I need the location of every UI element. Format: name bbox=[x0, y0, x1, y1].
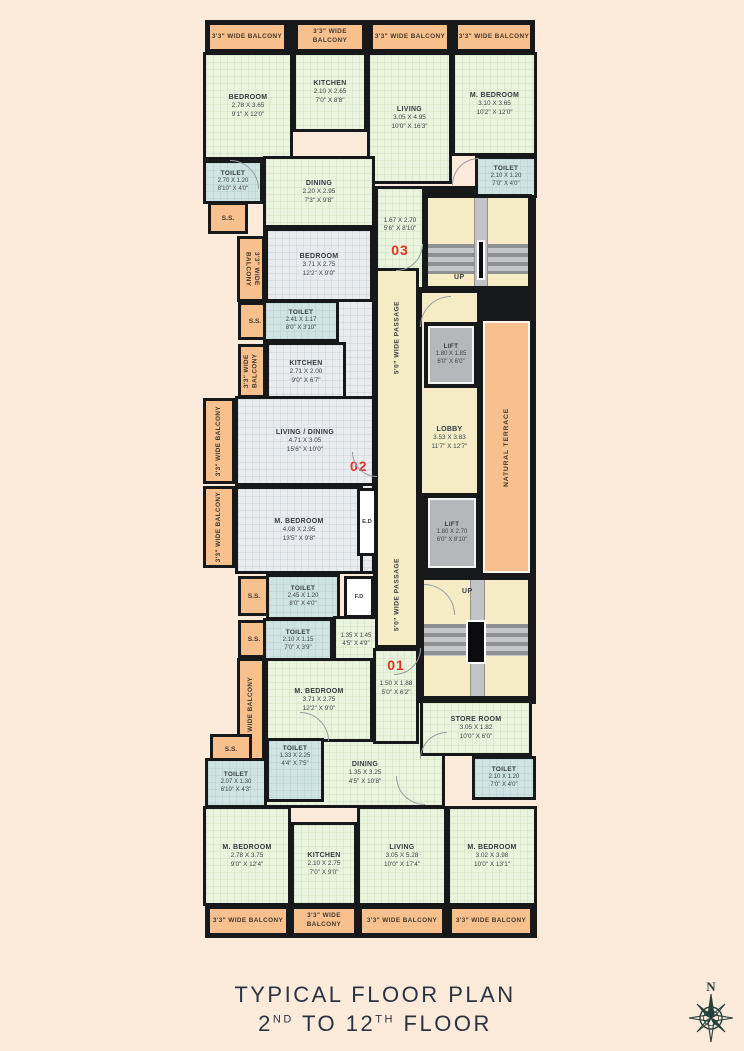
room-dim-m: 1.50 X 1.88 bbox=[380, 680, 413, 687]
room-name: LIFT bbox=[444, 343, 459, 351]
room-dim-ft: 9'0" X 12'4" bbox=[231, 861, 264, 869]
balcony-bottom-3: 3'3" WIDE BALCONY bbox=[359, 906, 445, 936]
lift-top: LIFT1.80 X 1.856'0" X 6'0" bbox=[424, 322, 478, 388]
room-name: M. BEDROOM bbox=[470, 91, 519, 100]
room-dim-m: 3.53 X 3.83 bbox=[433, 434, 466, 442]
room-mbedroom-unit02: M. BEDROOM4.08 X 2.9513'5" X 9'8" bbox=[235, 486, 363, 574]
room-dim-ft: 8'0" X 4'0" bbox=[289, 601, 316, 609]
room-mbedroom-bottom-left: M. BEDROOM2.78 X 3.759'0" X 12'4" bbox=[203, 806, 291, 906]
room-dim-ft: 7'0" X 9'0" bbox=[309, 869, 338, 877]
room-name: KITCHEN bbox=[313, 79, 346, 88]
room-dim-m: 3.05 X 4.95 bbox=[393, 114, 426, 122]
foyer-dim: 1.67 X 2.705'6" X 8'10" bbox=[384, 217, 417, 234]
balcony-left-2: 3'3" WIDE BALCONY bbox=[238, 344, 266, 398]
room-dim-ft: 15'6" X 10'0" bbox=[287, 446, 323, 454]
balcony-top-4: 3'3" WIDE BALCONY bbox=[455, 22, 533, 52]
room-bedroom-top: BEDROOM2.78 X 3.659'1" X 12'0" bbox=[203, 52, 293, 160]
room-dim-m: 2.41 X 1.17 bbox=[286, 317, 317, 325]
room-living-top: LIVING3.05 X 4.9510'0" X 16'3" bbox=[367, 52, 452, 184]
room-dim-ft: 5'0" X 6'2" bbox=[381, 689, 410, 696]
room-name: BEDROOM bbox=[229, 93, 268, 102]
room-name: TOILET bbox=[494, 165, 518, 173]
room-name: LIFT bbox=[445, 521, 460, 529]
room-name: M. BEDROOM bbox=[294, 687, 343, 696]
room-dim-ft: 6'0" X 8'10" bbox=[437, 537, 468, 545]
fd-label: F.D bbox=[355, 594, 364, 600]
room-name: M. BEDROOM bbox=[467, 843, 516, 852]
room-dining-bottom: DINING1.35 X 3.254'5" X 10'8" bbox=[320, 748, 410, 798]
foyer-dim: 1.50 X 1.885'0" X 6'2" bbox=[380, 680, 413, 697]
room-toilet1-bottom: TOILET1.33 X 2.254'4" X 7'5" bbox=[266, 738, 324, 802]
room-dim-m: 1.35 X 3.25 bbox=[349, 769, 382, 777]
room-bedroom-unit03: BEDROOM3.71 X 2.7512'2" X 9'0" bbox=[265, 228, 373, 302]
room-dim-m: 1.80 X 1.85 bbox=[436, 351, 467, 359]
room-toilet-bottom-right: TOILET2.10 X 1.207'0" X 4'0" bbox=[472, 756, 536, 800]
room-name: LIVING bbox=[389, 843, 414, 852]
room-name: STORE ROOM bbox=[451, 715, 502, 724]
title-sup: TH bbox=[375, 1014, 395, 1026]
room-dim-m: 2.10 X 1.15 bbox=[283, 637, 314, 645]
room-living-bottom: LIVING3.05 X 5.2810'0" X 17'4" bbox=[357, 806, 447, 906]
room-name: M. BEDROOM bbox=[222, 843, 271, 852]
room-dim-ft: 7'0" X 4'0" bbox=[492, 181, 519, 189]
floor-plan: 3'3" WIDE BALCONY 3'3" WIDE BALCONY 3'3"… bbox=[0, 0, 744, 1051]
room-dim-m: 2.78 X 3.65 bbox=[232, 102, 265, 110]
room-kitchen-top: KITCHEN2.10 X 2.657'0" X 8'8" bbox=[293, 52, 367, 132]
room-name: LIVING bbox=[397, 105, 422, 114]
room-dim-ft: 13'5" X 9'8" bbox=[283, 535, 316, 543]
room-dim-m: 2.10 X 1.20 bbox=[491, 173, 522, 181]
balcony-left-4: 3'3" WIDE BALCONY bbox=[203, 486, 235, 568]
room-name: DINING bbox=[352, 760, 378, 769]
natural-terrace: NATURAL TERRACE bbox=[480, 318, 533, 576]
balcony-label: 3'3" WIDE BALCONY bbox=[459, 33, 529, 42]
room-name: KITCHEN bbox=[307, 851, 340, 860]
room-name: TOILET bbox=[492, 766, 516, 774]
room-dim-m: 1.67 X 2.70 bbox=[384, 217, 417, 224]
room-dim-m: 1.33 X 2.25 bbox=[280, 753, 311, 761]
room-name: TOILET bbox=[291, 585, 315, 593]
compass-rose: N bbox=[683, 978, 739, 1046]
room-mbedroom-top: M. BEDROOM3.10 X 3.6510'2" X 12'0" bbox=[452, 52, 537, 156]
room-dim-ft: 6'10" X 4'3" bbox=[221, 787, 252, 795]
balcony-label: 3'3" WIDE BALCONY bbox=[294, 912, 354, 929]
room-dim-ft: 4'5" X 4'9" bbox=[342, 641, 369, 649]
room-dim-ft: 4'4" X 7'5" bbox=[281, 761, 308, 769]
balcony-label: 3'3" WIDE BALCONY bbox=[243, 347, 260, 395]
room-dim-m: 1.35 X 1.45 bbox=[341, 633, 372, 641]
room-name: TOILET bbox=[286, 629, 310, 637]
room-dim-m: 4.08 X 2.95 bbox=[283, 526, 316, 534]
room-dim-m: 3.71 X 2.75 bbox=[303, 696, 336, 704]
ss-label: S.S. bbox=[248, 636, 260, 643]
room-dim-ft: 4'5" X 10'8" bbox=[349, 778, 382, 786]
room-name: TOILET bbox=[283, 745, 307, 753]
plan-title-line1: TYPICAL FLOOR PLAN bbox=[180, 982, 570, 1008]
fire-duct: F.D bbox=[344, 576, 374, 618]
room-name: BEDROOM bbox=[300, 252, 339, 261]
balcony-label: 3'3" WIDE BALCONY bbox=[375, 33, 445, 42]
ss-label: S.S. bbox=[225, 746, 237, 753]
room-toilet-top-right: TOILET2.10 X 1.207'0" X 4'0" bbox=[475, 156, 537, 198]
room-dim-m: 2.78 X 3.75 bbox=[231, 852, 264, 860]
room-dim-ft: 7'0" X 4'0" bbox=[490, 782, 517, 790]
room-dim-m: 3.05 X 1.82 bbox=[460, 724, 493, 732]
balcony-label: 3'3" WIDE BALCONY bbox=[242, 239, 259, 299]
room-dim-ft: 9'1" X 12'0" bbox=[232, 111, 265, 119]
balcony-label: 3'3" WIDE BALCONY bbox=[212, 33, 282, 42]
room-name: LIVING / DINING bbox=[276, 428, 334, 437]
natural-terrace-label: NATURAL TERRACE bbox=[503, 408, 510, 487]
room-dim-m: 3.71 X 2.75 bbox=[303, 261, 336, 269]
balcony-left-1: 3'3" WIDE BALCONY bbox=[237, 236, 265, 302]
balcony-label: 3'3" WIDE BALCONY bbox=[213, 917, 283, 926]
electrical-duct: E.D bbox=[357, 488, 377, 556]
room-dim-m: 2.10 X 2.75 bbox=[308, 860, 341, 868]
balcony-label: 3'3" WIDE BALCONY bbox=[215, 492, 224, 562]
balcony-top-3: 3'3" WIDE BALCONY bbox=[370, 22, 450, 52]
balcony-left-3: 3'3" WIDE BALCONY bbox=[203, 398, 235, 484]
stair-newel bbox=[466, 620, 486, 664]
room-name: TOILET bbox=[289, 309, 313, 317]
title-num: 2 bbox=[258, 1011, 273, 1036]
stair-newel bbox=[477, 240, 485, 280]
room-name: M. BEDROOM bbox=[274, 517, 323, 526]
balcony-top-1: 3'3" WIDE BALCONY bbox=[207, 22, 287, 52]
room-kitchen-unit03: KITCHEN2.71 X 2.009'0" X 6'7" bbox=[266, 342, 346, 402]
room-dim-m: 2.07 X 1.30 bbox=[221, 779, 252, 787]
room-dim-ft: 7'0" X 8'8" bbox=[315, 97, 344, 105]
room-dim-ft: 9'0" X 6'7" bbox=[291, 377, 320, 385]
title-sup: ND bbox=[273, 1014, 294, 1026]
lift-bottom: LIFT1.80 X 2.706'0" X 8'10" bbox=[424, 494, 480, 572]
room-name: KITCHEN bbox=[289, 359, 322, 368]
ss-label: S.S. bbox=[222, 215, 234, 222]
room-name: LOBBY bbox=[437, 425, 463, 434]
balcony-label: 3'3" WIDE BALCONY bbox=[215, 406, 224, 476]
room-dim-ft: 10'0" X 16'3" bbox=[391, 123, 427, 131]
room-name: DINING bbox=[306, 179, 332, 188]
room-dim-m: 2.10 X 2.65 bbox=[314, 88, 347, 96]
service-shaft-1: S.S. bbox=[208, 202, 248, 234]
balcony-top-2: 3'3" WIDE BALCONY bbox=[295, 22, 365, 52]
balcony-label: 3'3" WIDE BALCONY bbox=[367, 917, 437, 926]
balcony-label: 3'3" WIDE BALCONY bbox=[298, 28, 362, 45]
title-mid: TO bbox=[294, 1011, 346, 1036]
room-toilet-unit03: TOILET2.41 X 1.178'0" X 3'10" bbox=[263, 300, 339, 342]
room-dim-m: 4.71 X 3.05 bbox=[289, 437, 322, 445]
room-dining-top: DINING2.20 X 2.957'3" X 9'8" bbox=[263, 156, 375, 228]
room-dim-ft: 10'0" X 13'1" bbox=[474, 861, 510, 869]
room-toilet2-bottom: TOILET2.07 X 1.306'10" X 4'3" bbox=[205, 758, 267, 808]
room-dim-ft: 8'0" X 3'10" bbox=[286, 325, 317, 333]
stairwell-top: UP bbox=[424, 194, 532, 290]
room-dim-ft: 11'7" X 12'7" bbox=[432, 443, 468, 451]
door-swing-arc bbox=[452, 158, 479, 185]
room-toilet1-unit02: TOILET2.45 X 1.208'0" X 4'0" bbox=[266, 574, 340, 620]
room-dim-m: 2.20 X 2.95 bbox=[303, 188, 336, 196]
balcony-bottom-2: 3'3" WIDE BALCONY bbox=[291, 906, 357, 936]
room-dim-m: 3.02 X 3.98 bbox=[476, 852, 509, 860]
room-dim-ft: 10'0" X 6'0" bbox=[460, 733, 493, 741]
room-dim-ft: 7'3" X 9'8" bbox=[304, 197, 333, 205]
room-kitchen-bottom: KITCHEN2.10 X 2.757'0" X 9'0" bbox=[291, 822, 357, 906]
ed-label: E.D bbox=[362, 519, 372, 525]
room-mbedroom-bottom-right: M. BEDROOM3.02 X 3.9810'0" X 13'1" bbox=[447, 806, 537, 906]
room-dim-ft: 7'0" X 3'9" bbox=[284, 645, 311, 653]
balcony-bottom-4: 3'3" WIDE BALCONY bbox=[449, 906, 533, 936]
passage-label-upper: 5'0" WIDE PASSAGE bbox=[394, 301, 401, 374]
ss-label: S.S. bbox=[249, 318, 261, 325]
room-dim-m: 1.80 X 2.70 bbox=[437, 529, 468, 537]
room-dim-m: 2.71 X 2.00 bbox=[290, 368, 323, 376]
balcony-bottom-1: 3'3" WIDE BALCONY bbox=[207, 906, 289, 936]
room-dim-m: 2.10 X 1.20 bbox=[489, 774, 520, 782]
passage-label-lower: 5'0" WIDE PASSAGE bbox=[394, 558, 401, 631]
room-dim-ft: 10'2" X 12'0" bbox=[476, 109, 512, 117]
room-dim-ft: 10'0" X 17'4" bbox=[384, 861, 420, 869]
room-dim-ft: 12'2" X 9'0" bbox=[303, 270, 336, 278]
room-dim-ft: 6'0" X 6'0" bbox=[437, 359, 464, 367]
plan-title: TYPICAL FLOOR PLAN 2ND TO 12TH FLOOR bbox=[180, 982, 570, 1037]
room-dim-ft: 12'2" X 9'0" bbox=[303, 705, 336, 713]
compass-icon: N bbox=[683, 978, 739, 1046]
room-name: TOILET bbox=[224, 771, 248, 779]
compass-north-letter: N bbox=[706, 979, 716, 994]
room-dim-m: 3.10 X 3.65 bbox=[478, 100, 511, 108]
up-label: UP bbox=[462, 588, 473, 595]
up-label: UP bbox=[454, 274, 465, 281]
ss-label: S.S. bbox=[248, 593, 260, 600]
balcony-label: 3'3" WIDE BALCONY bbox=[456, 917, 526, 926]
room-dim-m: 3.05 X 5.28 bbox=[386, 852, 419, 860]
room-dim-ft: 5'6" X 8'10" bbox=[384, 225, 417, 232]
title-end: FLOOR bbox=[395, 1011, 492, 1036]
passage: 5'0" WIDE PASSAGE 5'0" WIDE PASSAGE bbox=[375, 268, 419, 648]
plan-title-line2: 2ND TO 12TH FLOOR bbox=[180, 1011, 570, 1037]
page: { "title": { "line1": "TYPICAL FLOOR PLA… bbox=[0, 0, 744, 1051]
room-dim-m: 2.45 X 1.20 bbox=[288, 593, 319, 601]
title-num: 12 bbox=[346, 1011, 375, 1036]
